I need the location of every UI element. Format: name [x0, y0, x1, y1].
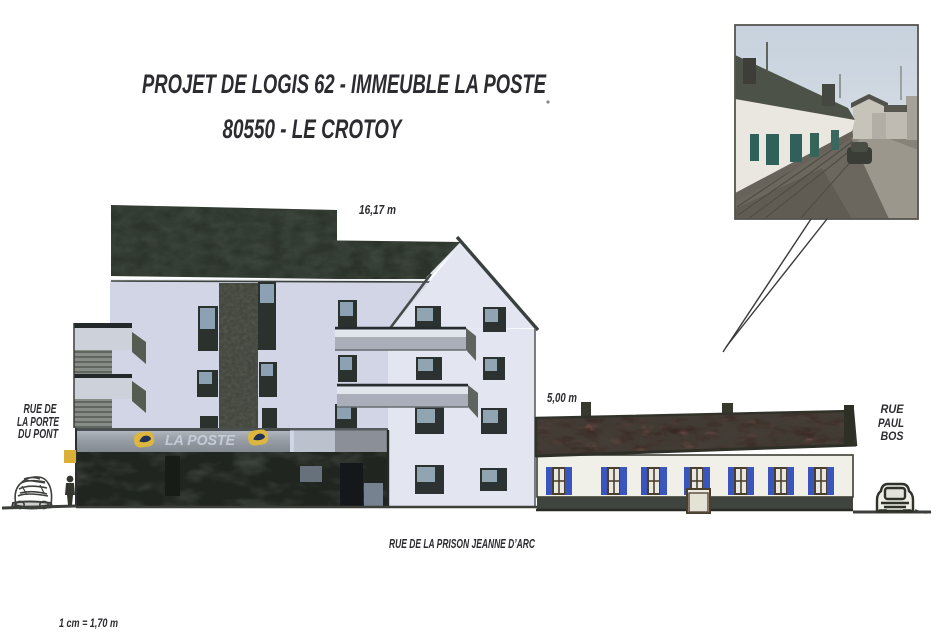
svg-text:1 cm = 1,70 m: 1 cm = 1,70 m: [59, 618, 118, 630]
svg-text:BOS: BOS: [881, 429, 904, 443]
svg-text:PROJET DE LOGIS 62 - IMMEUBLE: PROJET DE LOGIS 62 - IMMEUBLE LA POSTE: [142, 69, 547, 99]
svg-text:16,17 m: 16,17 m: [359, 203, 396, 217]
svg-text:5,00 m: 5,00 m: [547, 391, 577, 405]
svg-text:RUE: RUE: [881, 402, 905, 416]
svg-text:LA POSTE: LA POSTE: [165, 433, 236, 449]
svg-text:DU PONT: DU PONT: [18, 427, 59, 441]
svg-text:RUE DE LA PRISON JEANNE D’ARC: RUE DE LA PRISON JEANNE D’ARC: [389, 537, 536, 551]
svg-text:PAUL: PAUL: [878, 416, 904, 430]
svg-text:80550 - LE CROTOY: 80550 - LE CROTOY: [223, 114, 404, 144]
svg-text:RUE DE: RUE DE: [24, 402, 57, 416]
